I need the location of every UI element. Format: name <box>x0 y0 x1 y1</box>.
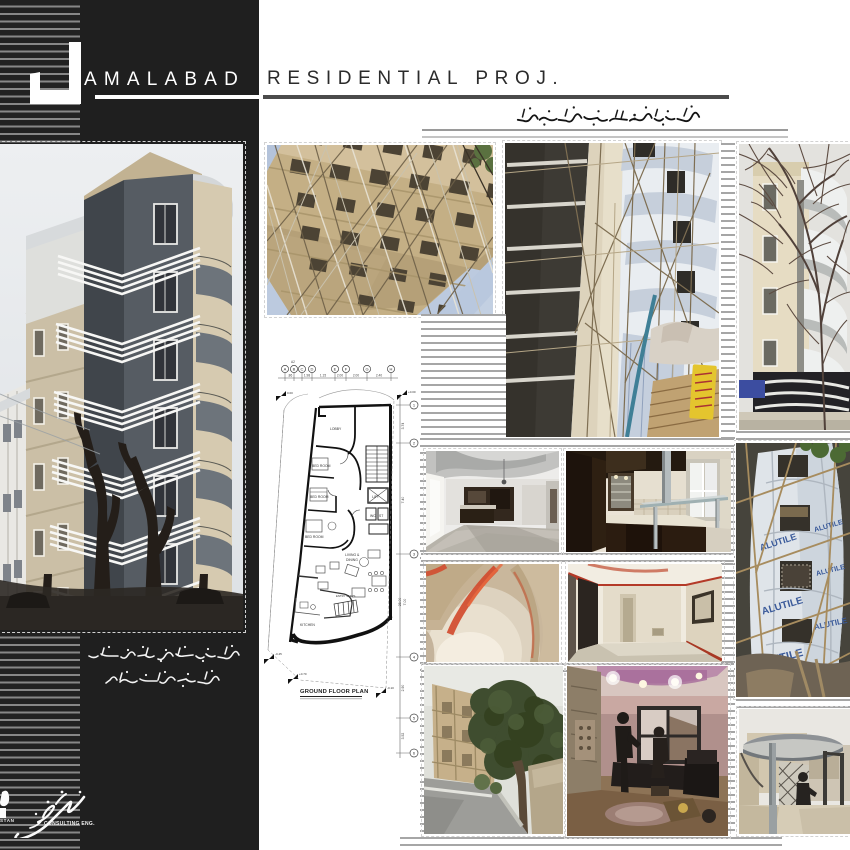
svg-text:3.52: 3.52 <box>401 733 405 740</box>
svg-text:2: 2 <box>413 441 416 446</box>
svg-text:CONSULTING ENG.: CONSULTING ENG. <box>44 821 95 827</box>
svg-text:F: F <box>345 367 348 372</box>
svg-text:1: 1 <box>413 403 416 408</box>
svg-text:-0.45: -0.45 <box>275 652 282 656</box>
svg-text:-0.10: -0.10 <box>387 686 394 690</box>
svg-text:LIVING &: LIVING & <box>345 553 360 557</box>
svg-text:28.00: 28.00 <box>398 598 402 607</box>
svg-text:2.00: 2.00 <box>353 374 359 378</box>
svg-text:2.40: 2.40 <box>376 374 382 378</box>
svg-text:ST: ST <box>379 514 383 518</box>
svg-text:GROUND FLOOR PLAN: GROUND FLOOR PLAN <box>300 689 368 695</box>
svg-text:+0.70: +0.70 <box>299 672 307 676</box>
svg-text:2.90: 2.90 <box>401 685 405 692</box>
svg-text:LOBBY: LOBBY <box>330 427 342 431</box>
svg-text:H: H <box>390 367 393 372</box>
svg-text:E: E <box>334 367 337 372</box>
svg-text:BED ROOM: BED ROOM <box>310 495 329 499</box>
svg-text:LIFT: LIFT <box>372 495 379 499</box>
svg-text:1.98: 1.98 <box>304 374 310 378</box>
svg-text:2.00: 2.00 <box>337 374 343 378</box>
svg-text:G: G <box>365 367 368 372</box>
svg-text:3: 3 <box>413 552 416 557</box>
svg-text:BED ROOM: BED ROOM <box>312 464 331 468</box>
svg-text:ENTRY STEPS: ENTRY STEPS <box>336 594 355 598</box>
svg-text:.86: .86 <box>288 374 293 378</box>
svg-text:0.00: 0.00 <box>287 391 293 395</box>
svg-text:+0.00: +0.00 <box>408 390 416 394</box>
svg-text:5: 5 <box>413 716 416 721</box>
svg-text:KITCHEN: KITCHEN <box>300 623 315 627</box>
svg-text:A2: A2 <box>291 360 295 364</box>
svg-text:7.40: 7.40 <box>401 497 405 504</box>
svg-text:C: C <box>301 367 304 372</box>
svg-text:4: 4 <box>413 655 416 660</box>
svg-text:STAN: STAN <box>0 818 15 823</box>
svg-text:BED ROOM: BED ROOM <box>305 535 324 539</box>
svg-text:1.15: 1.15 <box>320 374 326 378</box>
svg-text:WC: WC <box>370 514 376 518</box>
svg-text:DINING: DINING <box>346 558 358 562</box>
svg-text:7.00: 7.00 <box>403 599 407 606</box>
svg-text:D: D <box>311 367 314 372</box>
svg-text:6: 6 <box>413 751 416 756</box>
svg-text:3.74: 3.74 <box>401 423 405 430</box>
svg-text:B: B <box>293 367 296 372</box>
svg-text:A: A <box>284 367 287 372</box>
